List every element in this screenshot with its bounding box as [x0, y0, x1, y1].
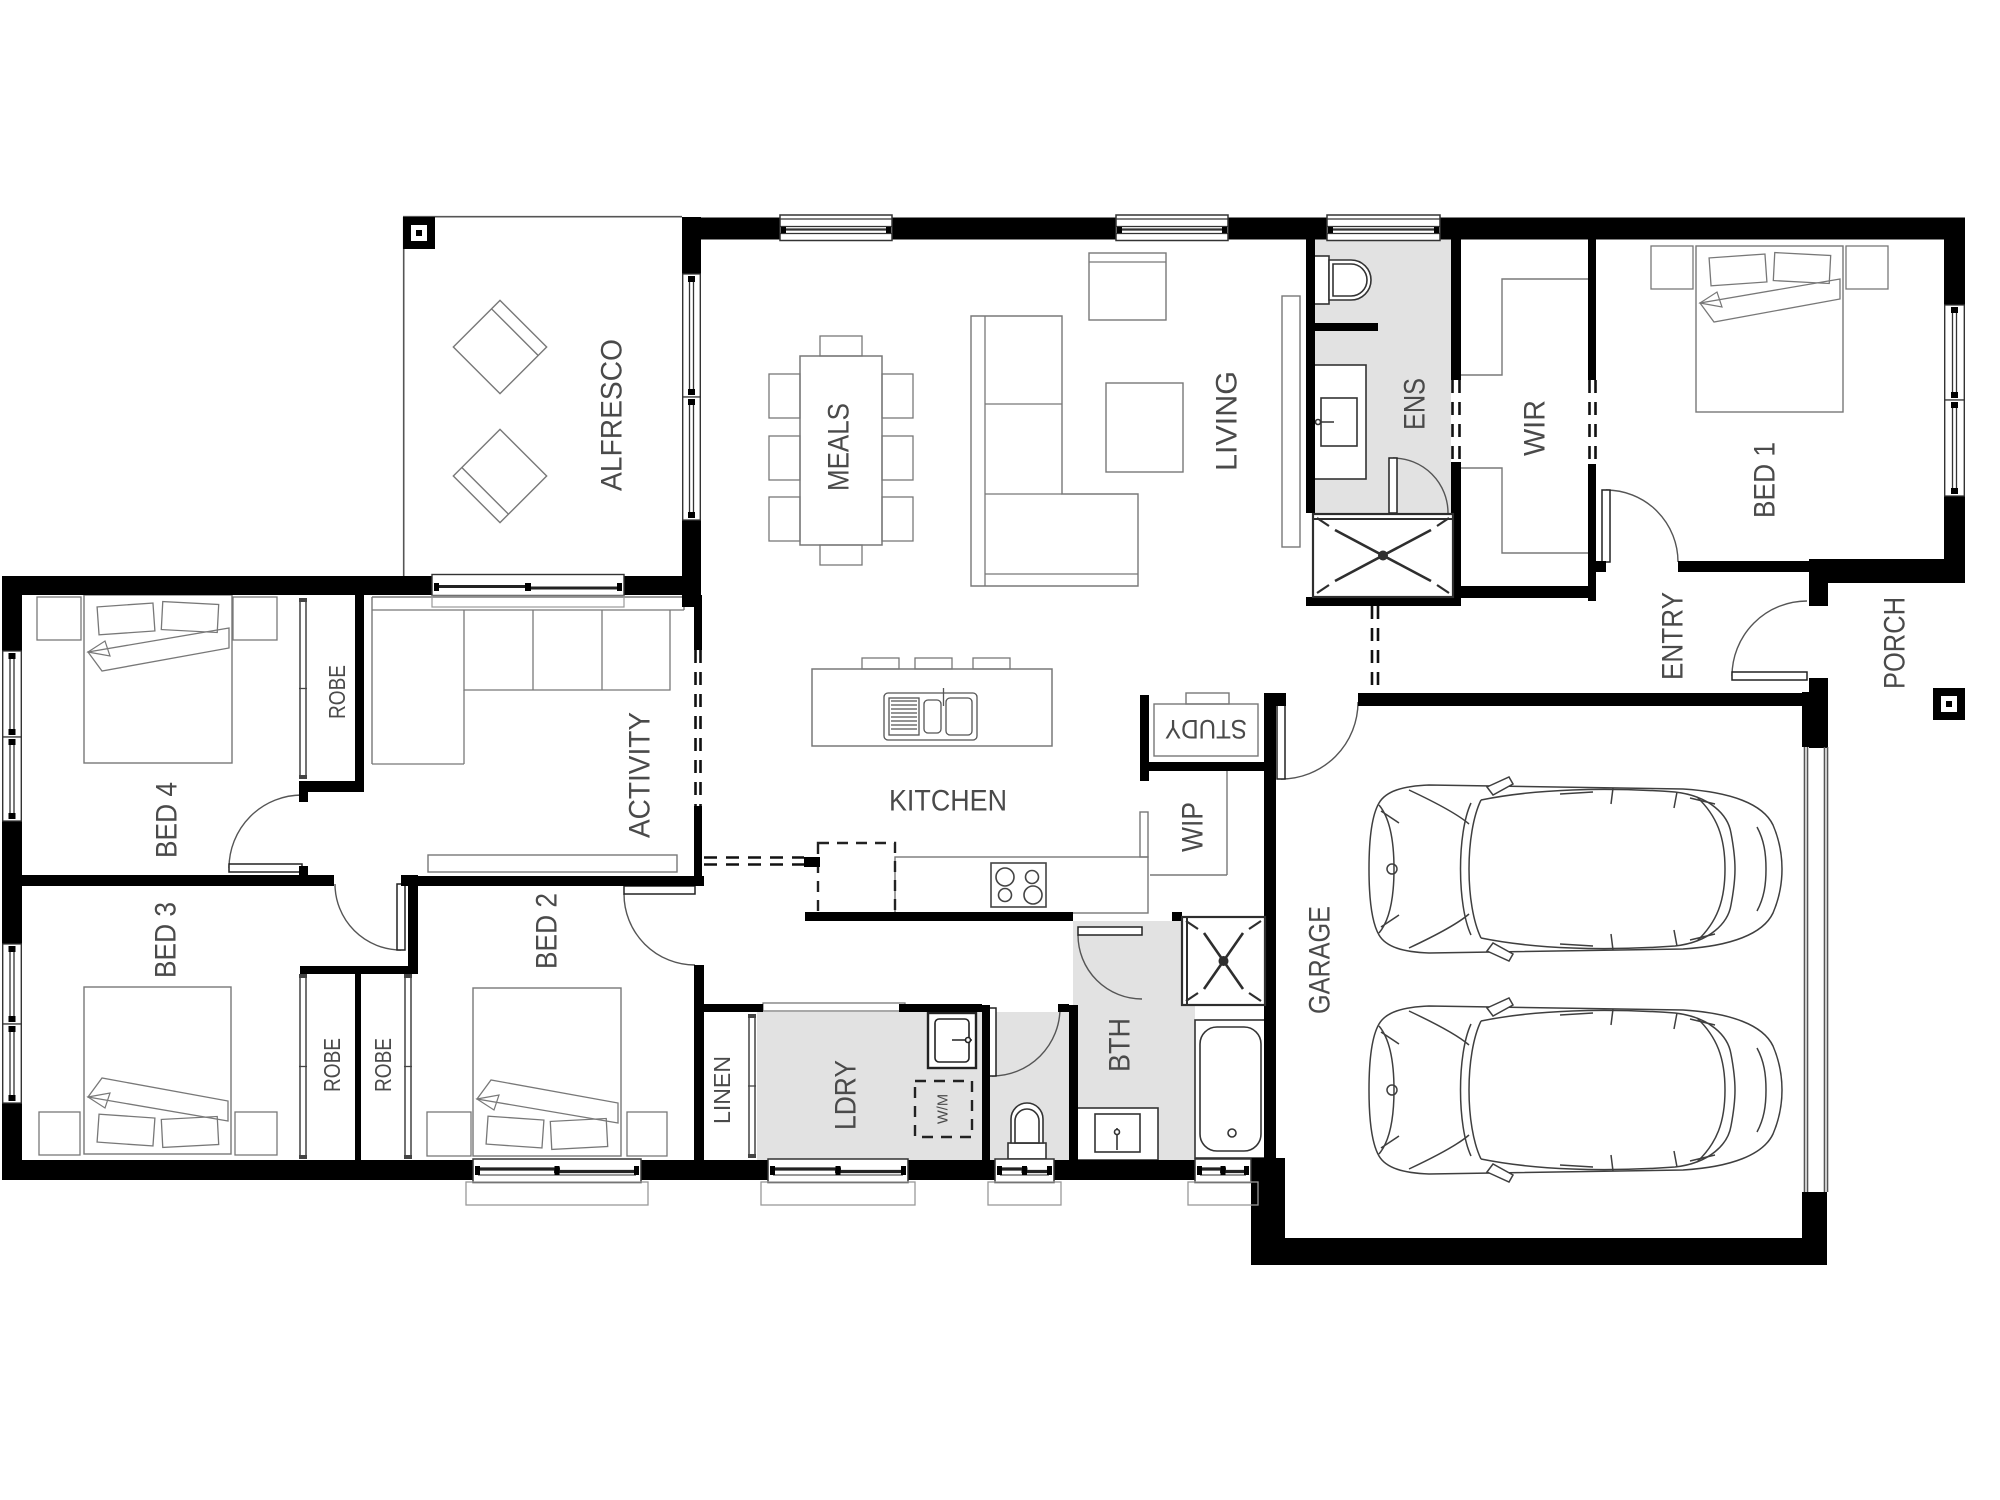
svg-text:PORCH: PORCH — [1879, 597, 1912, 689]
svg-text:ROBE: ROBE — [319, 1038, 345, 1092]
svg-text:WIP: WIP — [1177, 802, 1210, 852]
svg-text:LIVING: LIVING — [1211, 371, 1244, 471]
svg-text:ROBE: ROBE — [324, 665, 350, 719]
svg-text:ENTRY: ENTRY — [1657, 592, 1690, 680]
svg-text:STUDY: STUDY — [1165, 714, 1247, 744]
svg-text:KITCHEN: KITCHEN — [889, 785, 1007, 818]
svg-text:LINEN: LINEN — [709, 1056, 735, 1124]
svg-text:GARAGE: GARAGE — [1304, 906, 1337, 1014]
svg-text:MEALS: MEALS — [823, 403, 856, 491]
svg-text:ACTIVITY: ACTIVITY — [624, 712, 657, 838]
svg-text:LDRY: LDRY — [830, 1060, 863, 1130]
svg-text:BED 3: BED 3 — [150, 902, 183, 978]
svg-text:WIR: WIR — [1519, 400, 1552, 456]
svg-text:W/M: W/M — [935, 1094, 952, 1124]
svg-text:ALFRESCO: ALFRESCO — [596, 339, 629, 491]
svg-text:ROBE: ROBE — [370, 1038, 396, 1092]
svg-text:BED 2: BED 2 — [531, 893, 564, 969]
svg-text:ENS: ENS — [1399, 378, 1432, 430]
svg-text:BED 1: BED 1 — [1749, 442, 1782, 518]
svg-text:BTH: BTH — [1104, 1018, 1137, 1072]
svg-text:BED 4: BED 4 — [151, 782, 184, 858]
